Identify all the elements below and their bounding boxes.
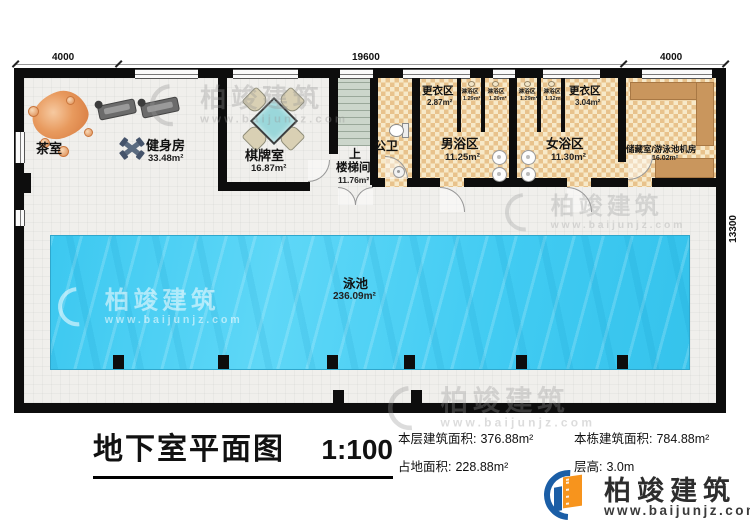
shower-stall-label: 淋浴区 — [543, 89, 560, 95]
pool-label: 泳池 — [343, 278, 368, 292]
wall-bath-band — [407, 178, 440, 187]
chess-room-label: 棋牌室 — [245, 149, 284, 163]
outer-wall-left — [14, 68, 24, 413]
changing-men-area: 2.87m² — [427, 98, 452, 107]
stat-label: 本层建筑面积: — [398, 432, 476, 446]
outer-wall-bottom — [14, 403, 726, 413]
gym-label: 健身房 — [146, 139, 185, 153]
shower-stall-label: 淋浴区 — [487, 89, 504, 95]
drawing-scale: 1:100 — [321, 434, 393, 466]
dimension-line — [14, 64, 726, 65]
stat-value: 376.88m² — [480, 432, 533, 446]
column — [404, 355, 415, 369]
gym-area: 33.48m² — [148, 153, 183, 164]
women-bath-area: 11.30m² — [551, 152, 586, 163]
shower-drain-icon — [521, 167, 536, 182]
shower-stall-area: 1.29m² — [463, 96, 480, 102]
column — [327, 355, 338, 369]
toilet-bowl-icon — [389, 124, 404, 137]
swimming-pool — [50, 235, 690, 370]
women-bath-label: 女浴区 — [546, 138, 584, 152]
floor-drain-icon — [393, 166, 405, 178]
storage-shelf — [696, 82, 714, 146]
wall-wc-menbath — [412, 78, 420, 185]
men-bath-label: 男浴区 — [441, 138, 479, 152]
dimension-top-left: 4000 — [52, 52, 74, 63]
staircase — [338, 78, 371, 146]
drawing-title-text: 地下室平面图 — [93, 424, 285, 468]
shower-drain-icon — [492, 167, 507, 182]
watermark-url: www.baijunjz.com — [440, 416, 595, 429]
shower-stall-label: 淋浴区 — [518, 89, 535, 95]
stair-up-label: 上 — [349, 148, 361, 161]
shower-drain-icon — [492, 150, 507, 165]
floor-plan: 4000 19600 4000 13300 泳池 236.09m² — [0, 0, 750, 420]
column — [113, 355, 124, 369]
storage-label: 储藏室/游泳池机房 — [626, 145, 696, 154]
shower-partition — [537, 78, 541, 132]
logo-building-blue — [554, 486, 562, 511]
stat-total-area: 本栋建筑面积:784.88m² — [574, 428, 709, 447]
person-icon — [94, 100, 103, 109]
company-website: www.baijunjz.com — [604, 503, 750, 518]
changing-women-label: 更衣区 — [569, 86, 601, 98]
wall-bath-band — [372, 178, 385, 187]
public-wc-label: 公卫 — [374, 140, 398, 153]
stat-value: 228.88m² — [455, 460, 508, 474]
shower-stall-label: 淋浴区 — [461, 89, 478, 95]
wall-chessroom-right — [329, 78, 338, 154]
tea-stone — [84, 128, 93, 137]
window — [543, 69, 600, 79]
tea-room-label: 茶室 — [36, 142, 62, 156]
shower-head-icon — [468, 81, 475, 87]
wall-bath-band — [464, 178, 567, 187]
wall-chessroom-left — [218, 78, 227, 185]
shower-stall-area: 1.12m² — [545, 96, 562, 102]
dimension-top-center: 19600 — [352, 52, 380, 63]
dimension-top-right: 4000 — [660, 52, 682, 63]
column — [617, 355, 628, 369]
window — [15, 210, 25, 226]
wall-men-women — [509, 78, 517, 185]
window — [135, 69, 198, 79]
logo-building-orange — [563, 475, 582, 509]
pool-wave-texture — [51, 236, 689, 369]
tea-stone — [66, 96, 75, 105]
column — [411, 390, 422, 404]
window — [642, 69, 712, 79]
changing-women-area: 3.04m² — [575, 98, 600, 107]
company-logo-icon — [541, 467, 597, 523]
wall-bath-band — [652, 178, 716, 187]
column — [516, 355, 527, 369]
window — [233, 69, 298, 79]
chess-room-area: 16.87m² — [251, 163, 286, 174]
dimension-right-side: 13300 — [728, 215, 739, 243]
stat-floor-area: 本层建筑面积:376.88m² — [398, 428, 566, 447]
shower-partition — [561, 78, 565, 132]
stat-label: 本栋建筑面积: — [574, 432, 652, 446]
stat-value: 784.88m² — [656, 432, 709, 446]
wall-bath-band — [591, 178, 628, 187]
window — [15, 132, 25, 163]
person-icon — [137, 98, 146, 107]
column — [218, 355, 229, 369]
storage-area: 16.02m² — [652, 155, 678, 162]
dim-tick — [722, 60, 729, 67]
men-bath-area: 11.25m² — [445, 152, 480, 163]
shower-stall-area: 1.20m² — [489, 96, 506, 102]
shower-head-icon — [524, 81, 531, 87]
drawing-title: 地下室平面图 1:100 — [93, 424, 393, 479]
window — [340, 69, 373, 79]
shower-drain-icon — [521, 150, 536, 165]
shower-partition — [481, 78, 485, 132]
wall-pilaster — [24, 173, 31, 193]
stat-label: 占地面积: — [398, 460, 451, 474]
wall-women-storage — [618, 78, 626, 162]
shower-partition — [457, 78, 461, 132]
shower-head-icon — [492, 81, 499, 87]
outer-wall-right — [716, 68, 726, 413]
shower-stall-area: 1.29m² — [520, 96, 537, 102]
wall-chessroom-bottom — [218, 182, 310, 191]
column — [333, 390, 344, 404]
tea-stone — [28, 106, 39, 117]
stairwell-area: 11.76m² — [338, 175, 369, 185]
stairwell-label: 楼梯间 — [336, 162, 371, 175]
changing-men-label: 更衣区 — [422, 86, 454, 98]
wall-stair-wc — [370, 78, 378, 185]
pool-area: 236.09m² — [333, 291, 376, 302]
shower-head-icon — [548, 81, 555, 87]
